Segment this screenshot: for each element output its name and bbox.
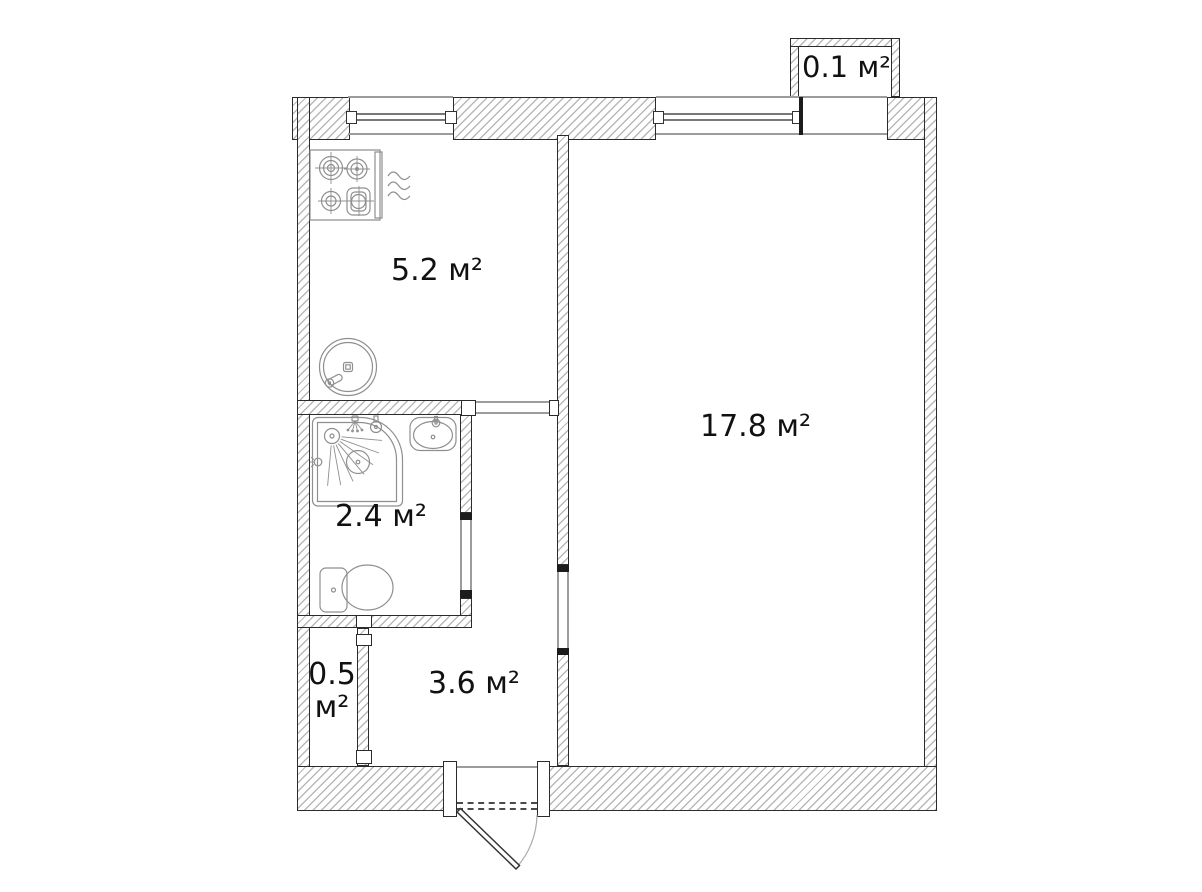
kitchen-passage-line-bottom bbox=[473, 412, 553, 414]
room-door-cap-top bbox=[557, 565, 569, 572]
balcony-area-label: 0.1 м² bbox=[802, 50, 891, 84]
kitchen-passage-jamb-left bbox=[461, 400, 476, 416]
stove-icon bbox=[308, 146, 414, 226]
floor-plan: 5.2 м² 17.8 м² 2.4 м² 3.6 м² 0.5 м² 0.1 … bbox=[0, 0, 1202, 892]
kitchen-passage-jamb-right bbox=[549, 400, 559, 416]
face-line-balcony-opening-inner bbox=[803, 133, 887, 135]
room-door-reveal-left bbox=[557, 570, 559, 648]
bath-door-cap-top bbox=[460, 513, 472, 520]
wall-bottom-left bbox=[297, 766, 445, 811]
wall-bathroom-top bbox=[297, 400, 473, 415]
kitchen-window-end-right bbox=[445, 111, 457, 124]
bathroom-sink-icon bbox=[409, 416, 457, 452]
bathroom-area-label: 2.4 м² bbox=[335, 499, 427, 534]
closet-area-value: 0.5 bbox=[308, 657, 356, 692]
kitchen-passage-line-top bbox=[473, 401, 553, 403]
room-door-cap-bottom bbox=[557, 648, 569, 655]
room-window-icon bbox=[653, 111, 664, 124]
wall-hall-room-partition-lower bbox=[557, 654, 569, 766]
wall-right bbox=[924, 97, 937, 811]
kitchen-area-label: 5.2 м² bbox=[391, 253, 483, 288]
wall-top-pier-middle bbox=[453, 97, 656, 140]
face-line-balcony-opening-outer bbox=[803, 96, 887, 98]
closet-jamb-top-b bbox=[356, 634, 372, 646]
closet-jamb-bottom bbox=[356, 750, 372, 764]
room-window-glass-outer bbox=[664, 113, 792, 115]
wall-balcony-top bbox=[790, 38, 900, 47]
living-room-area-label: 17.8 м² bbox=[700, 409, 811, 444]
face-line-kitchen-window-inner bbox=[348, 133, 453, 135]
face-line-kitchen-window-outer bbox=[348, 96, 453, 98]
balcony-opening-divider bbox=[799, 97, 803, 135]
toilet-icon bbox=[317, 558, 399, 618]
wall-bottom-right bbox=[537, 766, 937, 811]
bath-door-cap-bottom bbox=[460, 590, 472, 598]
face-line-room-window-outer bbox=[656, 96, 803, 98]
closet-area-label: 0.5 м² bbox=[302, 658, 362, 724]
room-door-reveal-right bbox=[567, 570, 569, 648]
kitchen-window-icon bbox=[346, 111, 357, 124]
kitchen-window-glass-inner bbox=[357, 119, 445, 121]
hallway-area-label: 3.6 м² bbox=[428, 666, 520, 701]
closet-area-unit: м² bbox=[315, 690, 350, 725]
room-window-glass-inner bbox=[664, 119, 792, 121]
face-line-room-window-inner bbox=[656, 133, 803, 135]
bath-door-reveal-left bbox=[460, 520, 462, 590]
shower-icon bbox=[311, 416, 404, 508]
wall-kitchen-room-partition bbox=[557, 135, 569, 565]
kitchen-window-glass-outer bbox=[357, 113, 445, 115]
wall-balcony-right bbox=[891, 38, 900, 97]
bath-door-reveal-right bbox=[470, 520, 472, 590]
kitchen-sink-icon bbox=[318, 336, 380, 400]
wall-bathroom-right-upper bbox=[460, 415, 472, 513]
entry-door-icon bbox=[450, 758, 550, 878]
